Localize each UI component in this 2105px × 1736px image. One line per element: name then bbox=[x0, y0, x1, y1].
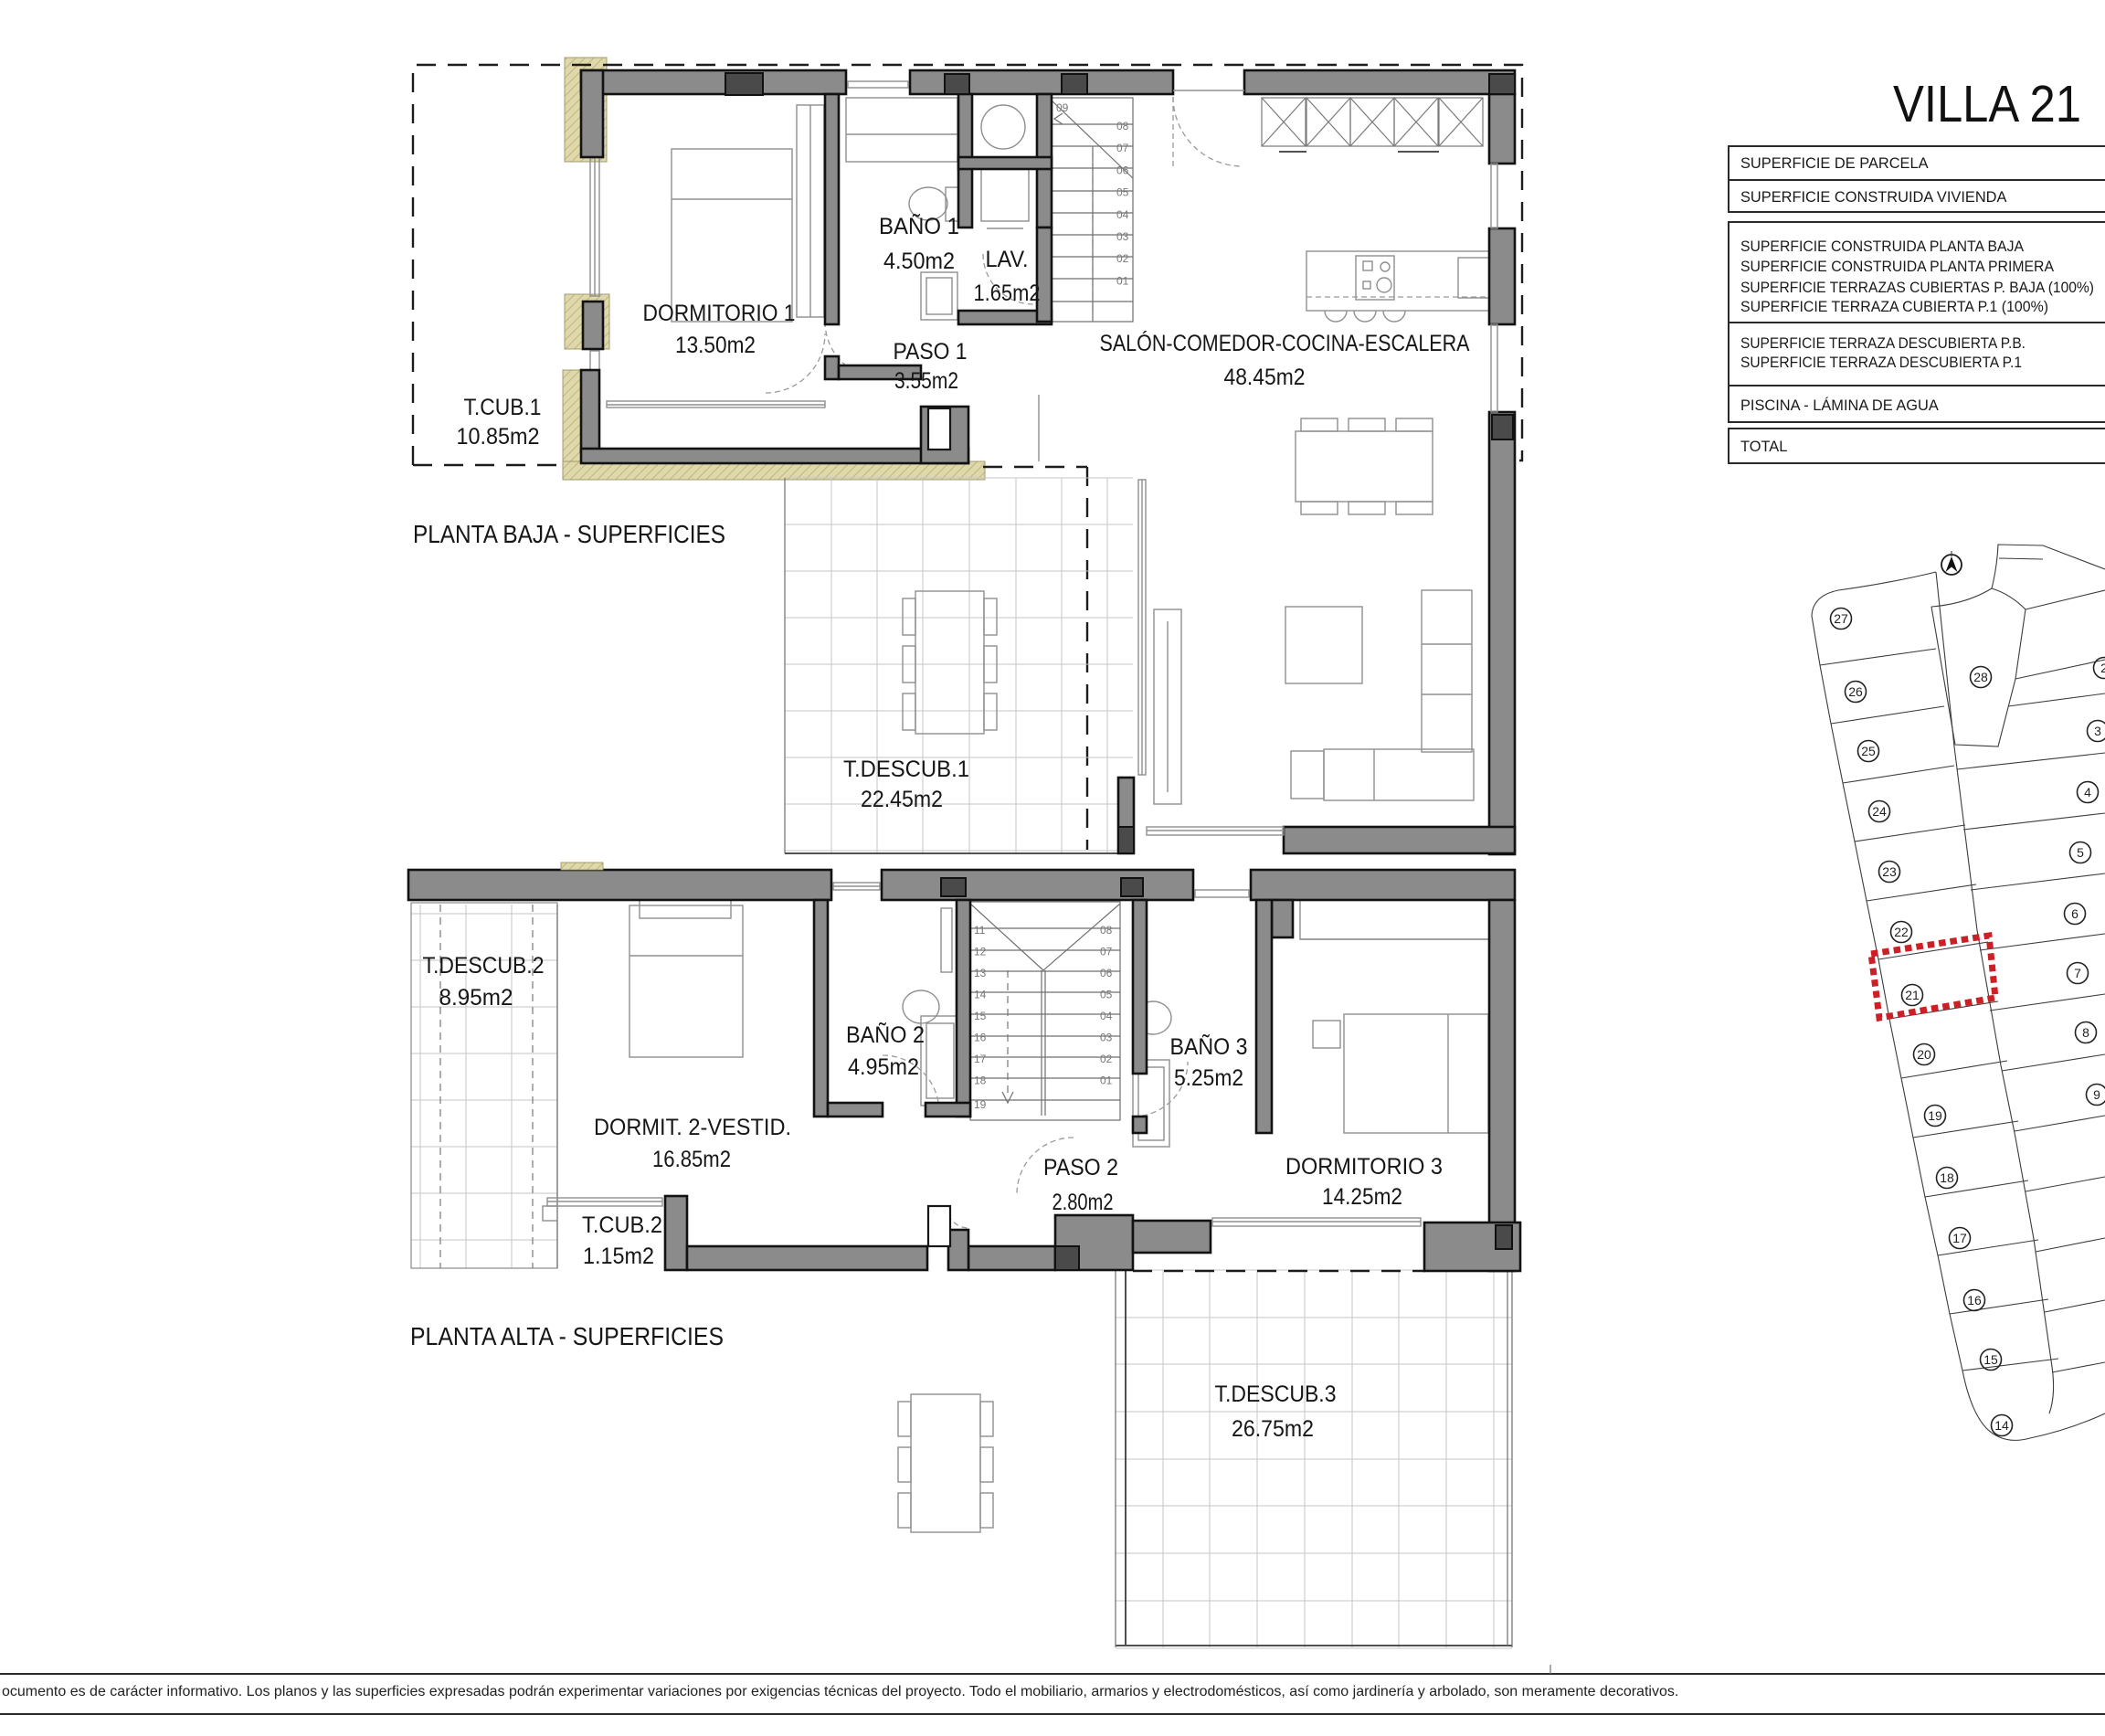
svg-text:2.80m2: 2.80m2 bbox=[1052, 1190, 1114, 1215]
svg-text:5.25m2: 5.25m2 bbox=[1174, 1065, 1243, 1091]
svg-text:04: 04 bbox=[1116, 208, 1129, 221]
svg-text:13: 13 bbox=[974, 967, 987, 979]
svg-text:01: 01 bbox=[1116, 274, 1129, 287]
svg-text:19: 19 bbox=[1928, 1108, 1942, 1123]
svg-text:14: 14 bbox=[1994, 1418, 2009, 1433]
svg-text:10.85m2: 10.85m2 bbox=[457, 424, 540, 450]
svg-text:SUPERFICIE TERRAZA CUBIERTA P.: SUPERFICIE TERRAZA CUBIERTA P.1 (100%) bbox=[1740, 299, 2048, 315]
svg-text:BAÑO 2: BAÑO 2 bbox=[846, 1021, 925, 1048]
svg-text:25: 25 bbox=[1861, 744, 1876, 758]
svg-text:11: 11 bbox=[974, 924, 986, 937]
svg-text:3.55m2: 3.55m2 bbox=[894, 368, 958, 394]
svg-text:9: 9 bbox=[2093, 1087, 2100, 1102]
svg-text:TOTAL: TOTAL bbox=[1740, 439, 1787, 455]
svg-text:07: 07 bbox=[1116, 142, 1129, 154]
svg-text:DORMIT. 2-VESTID.: DORMIT. 2-VESTID. bbox=[594, 1115, 791, 1140]
svg-text:08: 08 bbox=[1116, 120, 1129, 132]
svg-text:1.15m2: 1.15m2 bbox=[583, 1244, 654, 1269]
svg-text:SUPERFICIE DE PARCELA: SUPERFICIE DE PARCELA bbox=[1740, 155, 1929, 172]
svg-text:07: 07 bbox=[1100, 946, 1113, 958]
svg-text:15: 15 bbox=[974, 1010, 987, 1022]
svg-text:08: 08 bbox=[1100, 924, 1113, 937]
svg-text:02: 02 bbox=[1100, 1053, 1113, 1065]
svg-text:06: 06 bbox=[1116, 164, 1129, 176]
svg-text:7: 7 bbox=[2074, 966, 2081, 980]
svg-text:27: 27 bbox=[1834, 611, 1848, 626]
svg-text:12: 12 bbox=[974, 946, 987, 958]
svg-text:5: 5 bbox=[2077, 845, 2084, 860]
svg-text:DORMITORIO 3: DORMITORIO 3 bbox=[1285, 1154, 1443, 1180]
svg-text:ocumento es de carácter inform: ocumento es de carácter informativo. Los… bbox=[2, 1684, 1678, 1699]
svg-text:22.45m2: 22.45m2 bbox=[861, 787, 943, 812]
svg-text:PASO 2: PASO 2 bbox=[1043, 1155, 1118, 1180]
svg-text:T.DESCUB.3: T.DESCUB.3 bbox=[1215, 1381, 1337, 1407]
svg-text:09: 09 bbox=[1056, 101, 1069, 114]
svg-text:19: 19 bbox=[974, 1098, 987, 1111]
svg-text:20: 20 bbox=[1917, 1047, 1931, 1062]
svg-text:T.CUB.1: T.CUB.1 bbox=[464, 395, 542, 420]
svg-text:8: 8 bbox=[2082, 1025, 2089, 1040]
svg-text:VILLA 21: VILLA 21 bbox=[1893, 75, 2081, 132]
svg-text:02: 02 bbox=[1116, 252, 1129, 265]
svg-text:6: 6 bbox=[2071, 906, 2079, 921]
svg-text:18: 18 bbox=[974, 1074, 987, 1087]
svg-text:13.50m2: 13.50m2 bbox=[675, 333, 756, 358]
svg-text:17: 17 bbox=[1952, 1231, 1967, 1245]
svg-text:21: 21 bbox=[1905, 988, 1920, 1002]
svg-text:05: 05 bbox=[1116, 186, 1129, 199]
svg-text:T.DESCUB.1: T.DESCUB.1 bbox=[843, 757, 969, 782]
svg-text:DORMITORIO 1: DORMITORIO 1 bbox=[643, 301, 796, 326]
svg-text:PLANTA ALTA - SUPERFICIES: PLANTA ALTA - SUPERFICIES bbox=[410, 1322, 724, 1350]
svg-text:SALÓN-COMEDOR-COCINA-ESCALERA: SALÓN-COMEDOR-COCINA-ESCALERA bbox=[1100, 330, 1470, 356]
svg-text:4: 4 bbox=[2084, 785, 2091, 799]
svg-text:BAÑO 3: BAÑO 3 bbox=[1170, 1033, 1248, 1060]
svg-text:17: 17 bbox=[974, 1053, 987, 1065]
svg-text:03: 03 bbox=[1116, 230, 1129, 243]
svg-text:24: 24 bbox=[1872, 804, 1887, 819]
svg-text:04: 04 bbox=[1100, 1010, 1113, 1022]
svg-text:26: 26 bbox=[1848, 684, 1863, 699]
svg-text:06: 06 bbox=[1100, 967, 1113, 979]
svg-text:26.75m2: 26.75m2 bbox=[1232, 1416, 1314, 1442]
svg-text:14.25m2: 14.25m2 bbox=[1322, 1184, 1402, 1210]
svg-text:14: 14 bbox=[974, 989, 987, 1001]
svg-text:16.85m2: 16.85m2 bbox=[652, 1147, 731, 1172]
svg-text:2: 2 bbox=[2100, 661, 2105, 675]
svg-text:T.CUB.2: T.CUB.2 bbox=[582, 1212, 662, 1238]
svg-text:SUPERFICIE CONSTRUIDA PLANTA B: SUPERFICIE CONSTRUIDA PLANTA BAJA bbox=[1740, 238, 2024, 255]
svg-text:SUPERFICIE TERRAZA DESCUBIERTA: SUPERFICIE TERRAZA DESCUBIERTA P.B. bbox=[1740, 335, 2026, 352]
svg-text:SUPERFICIE TERRAZA DESCUBIERTA: SUPERFICIE TERRAZA DESCUBIERTA P.1 bbox=[1740, 355, 2022, 371]
svg-text:LAV.: LAV. bbox=[986, 247, 1029, 272]
svg-text:PLANTA BAJA - SUPERFICIES: PLANTA BAJA - SUPERFICIES bbox=[413, 520, 725, 548]
svg-text:SUPERFICIE TERRAZAS CUBIERTAS: SUPERFICIE TERRAZAS CUBIERTAS P. BAJA (1… bbox=[1740, 280, 2094, 296]
svg-text:PISCINA - LÁMINA DE AGUA: PISCINA - LÁMINA DE AGUA bbox=[1740, 397, 1939, 414]
svg-text:16: 16 bbox=[974, 1032, 987, 1044]
svg-text:SUPERFICIE CONSTRUIDA PLANTA P: SUPERFICIE CONSTRUIDA PLANTA PRIMERA bbox=[1740, 259, 2054, 275]
svg-text:28: 28 bbox=[1973, 670, 1988, 684]
svg-text:4.50m2: 4.50m2 bbox=[883, 249, 955, 274]
svg-text:03: 03 bbox=[1100, 1032, 1113, 1044]
svg-text:3: 3 bbox=[2094, 724, 2101, 738]
svg-text:T.DESCUB.2: T.DESCUB.2 bbox=[423, 953, 545, 979]
svg-text:18: 18 bbox=[1940, 1170, 1954, 1185]
svg-text:8.95m2: 8.95m2 bbox=[439, 985, 513, 1011]
svg-text:22: 22 bbox=[1894, 925, 1909, 939]
svg-text:PASO 1: PASO 1 bbox=[894, 339, 968, 365]
svg-text:SUPERFICIE CONSTRUIDA VIVIENDA: SUPERFICIE CONSTRUIDA VIVIENDA bbox=[1740, 189, 2007, 206]
svg-text:01: 01 bbox=[1100, 1074, 1113, 1087]
svg-text:23: 23 bbox=[1882, 864, 1897, 879]
svg-text:15: 15 bbox=[1983, 1352, 1998, 1367]
svg-text:1.65m2: 1.65m2 bbox=[974, 281, 1041, 306]
svg-text:4.95m2: 4.95m2 bbox=[848, 1054, 919, 1080]
svg-text:BAÑO 1: BAÑO 1 bbox=[879, 213, 959, 239]
svg-text:05: 05 bbox=[1100, 989, 1113, 1001]
svg-text:48.45m2: 48.45m2 bbox=[1224, 365, 1306, 390]
svg-text:16: 16 bbox=[1967, 1293, 1982, 1307]
